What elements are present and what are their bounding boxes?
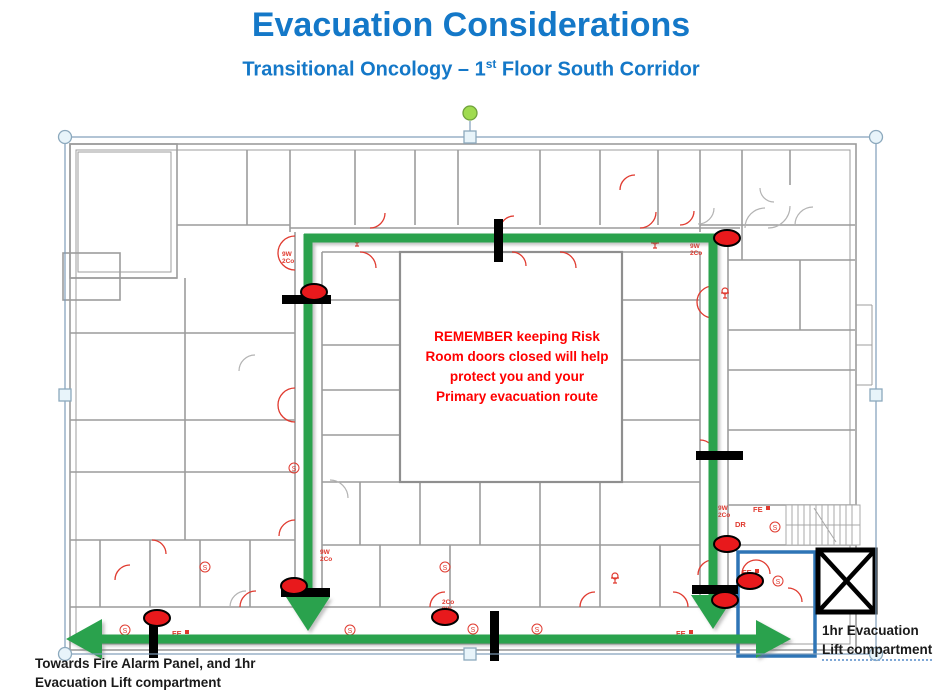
fire-alarm-direction-label: Towards Fire Alarm Panel, and 1hr Evacua… xyxy=(35,654,256,692)
fire-door-bar xyxy=(494,219,503,262)
plan-label-2co: 2Co xyxy=(320,556,332,563)
slide: Evacuation Considerations Transitional O… xyxy=(0,0,942,698)
plan-label-fe: FE xyxy=(753,505,763,514)
sprinkler-symbol-label: S xyxy=(443,565,448,572)
selection-handle-left-middle[interactable] xyxy=(59,389,71,401)
selection-handle-top-right[interactable] xyxy=(870,131,883,144)
risk-marker xyxy=(714,230,740,246)
plan-label-2co: 2Co xyxy=(442,599,454,606)
plan-label-dr: DR xyxy=(735,520,746,529)
selection-handle-bottom-center[interactable] xyxy=(464,648,476,660)
risk-marker xyxy=(301,284,327,300)
sprinkler-symbol-label: S xyxy=(535,627,540,634)
plan-label-9w: 9W xyxy=(690,243,701,250)
lift-shaft-symbol xyxy=(818,550,875,612)
lift-compartment-label-line1: 1hr Evacuation xyxy=(822,621,932,640)
sprinkler-symbol-label: S xyxy=(776,579,781,586)
risk-room-warning: REMEMBER keeping Risk Room doors closed … xyxy=(403,327,631,407)
selection-handle-right-middle[interactable] xyxy=(870,389,882,401)
risk-marker xyxy=(281,578,307,594)
route-arrowhead-right xyxy=(756,620,791,658)
sprinkler-symbol-label: S xyxy=(292,466,297,473)
risk-marker xyxy=(144,610,170,626)
sprinkler-symbol-label: S xyxy=(203,565,208,572)
route-arrowhead-down-left xyxy=(286,597,330,631)
plan-label-9w: 9W xyxy=(282,251,293,258)
plan-label-9w: 9W xyxy=(718,505,729,512)
stairwell xyxy=(786,505,860,545)
plan-label-2co: 2Co xyxy=(282,258,294,265)
risk-marker xyxy=(737,573,763,589)
sprinkler-symbol-label: S xyxy=(123,628,128,635)
sprinkler-symbol-label: S xyxy=(348,628,353,635)
risk-marker xyxy=(712,592,738,608)
selection-handle-top-left[interactable] xyxy=(59,131,72,144)
lift-compartment-label-line2: Lift compartment xyxy=(822,640,932,661)
plan-label-9w: 9W xyxy=(320,549,331,556)
lift-compartment-label: 1hr Evacuation Lift compartment xyxy=(822,621,932,661)
sprinkler-symbol-label: S xyxy=(471,627,476,634)
rotation-handle[interactable] xyxy=(463,106,477,120)
risk-marker xyxy=(432,609,458,625)
plan-label-2co: 2Co xyxy=(718,512,730,519)
selection-handle-top-center[interactable] xyxy=(464,131,476,143)
plan-label-2co: 2Co xyxy=(690,250,702,257)
sprinkler-symbol-label: S xyxy=(773,525,778,532)
fire-door-bar xyxy=(696,451,743,460)
risk-marker xyxy=(714,536,740,552)
